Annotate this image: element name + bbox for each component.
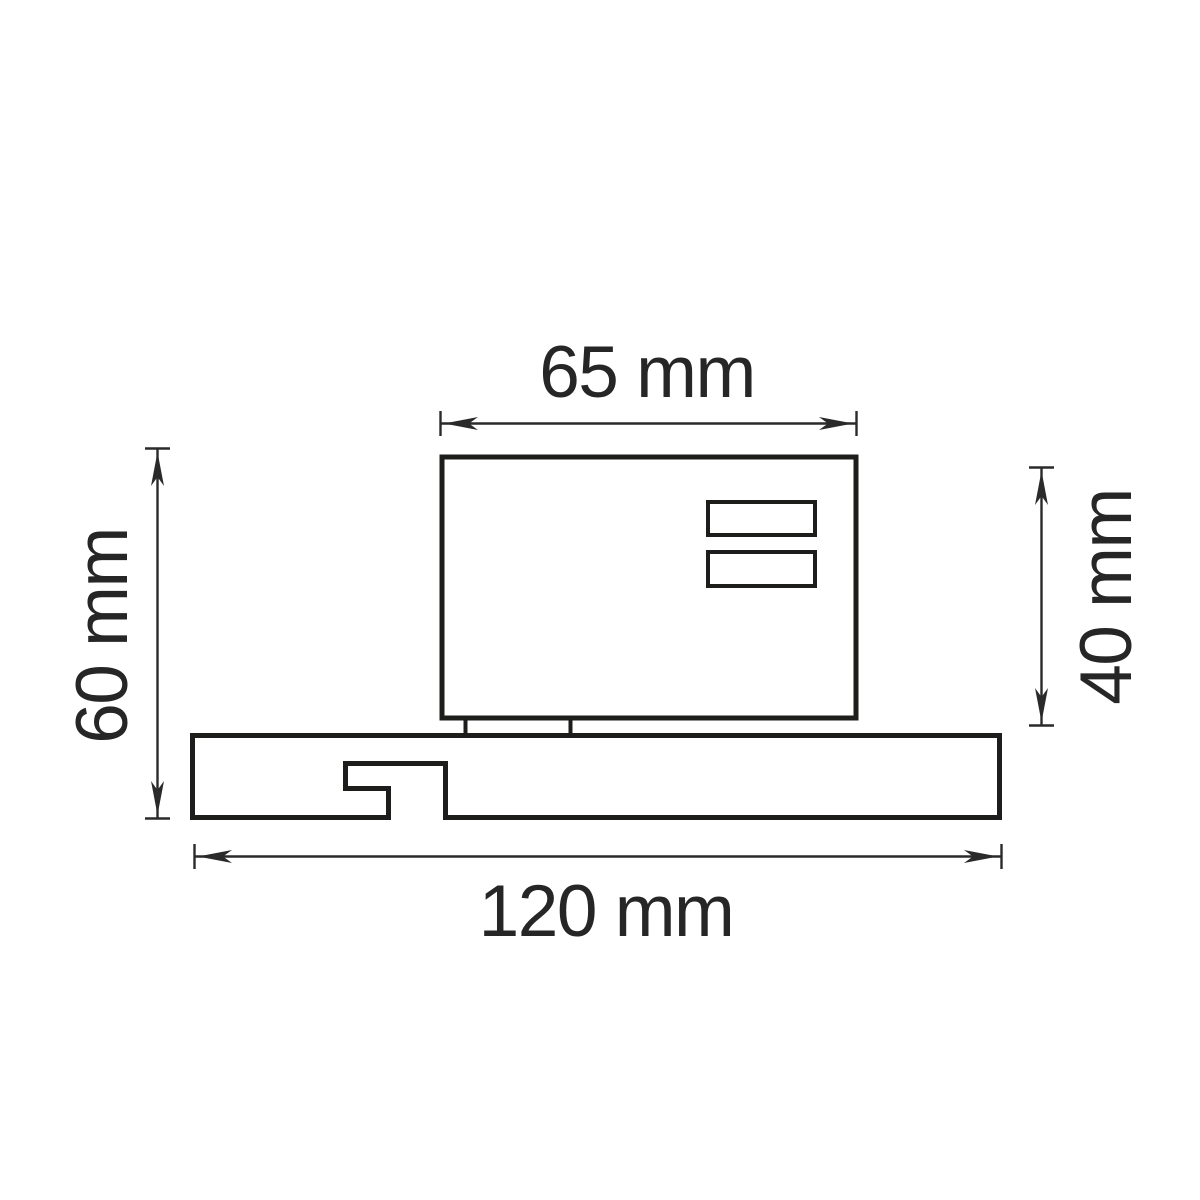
dimension-right: 40 mm	[1029, 468, 1147, 726]
dimension-label-left: 60 mm	[62, 528, 143, 744]
dimension-bottom: 120 mm	[195, 844, 1002, 952]
dimension-label-bottom: 120 mm	[479, 871, 734, 952]
track-base-outline	[193, 736, 1000, 818]
dimension-label-right: 40 mm	[1066, 489, 1147, 705]
dimension-top: 65 mm	[441, 332, 857, 436]
fixture-geometry	[193, 457, 1000, 818]
body-detail-rect-top	[708, 502, 815, 535]
body-detail-rect-bottom	[708, 552, 815, 586]
technical-drawing: 65 mm 60 mm 40 mm	[0, 0, 1200, 1200]
dimension-label-top: 65 mm	[539, 332, 755, 413]
dimension-left: 60 mm	[62, 449, 170, 819]
drawing-canvas: 65 mm 60 mm 40 mm	[0, 0, 1200, 1200]
